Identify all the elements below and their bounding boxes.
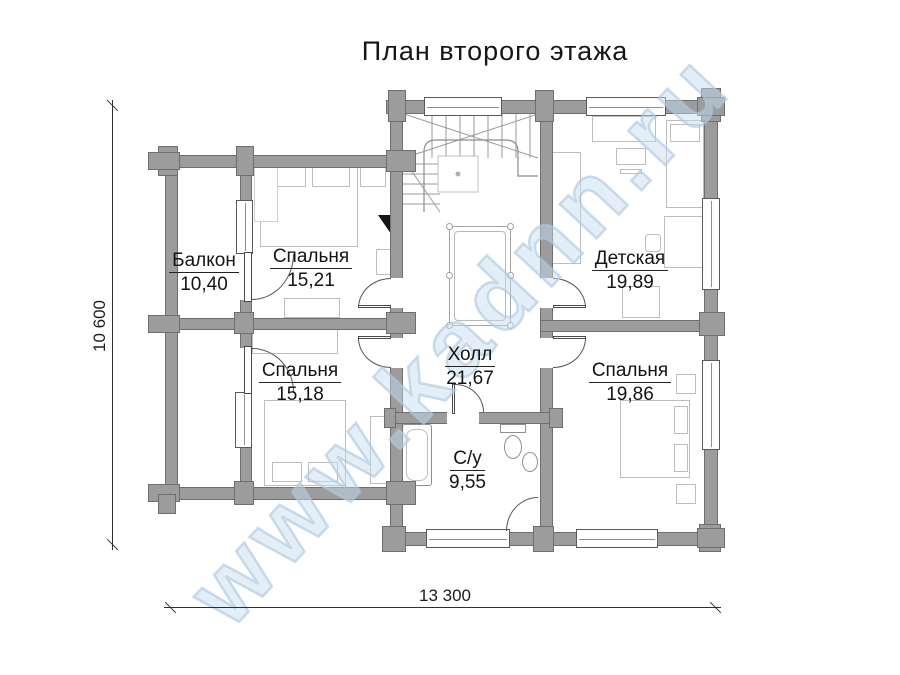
door-leaf [553, 305, 586, 308]
room-label-su: С/у 9,55 [410, 448, 525, 494]
room-label-balkon: Балкон 10,40 [158, 250, 250, 296]
log-end [549, 408, 563, 428]
floor-plan: План второго этажа [0, 0, 900, 675]
room-label-bedroom2: Спальня 15,18 [240, 360, 360, 406]
log-end [234, 481, 254, 505]
room-name: Балкон [169, 250, 239, 273]
window [576, 529, 658, 548]
wall-detskaya-divider [540, 320, 718, 332]
log-end [697, 97, 725, 116]
room-name: Спальня [259, 360, 341, 383]
pillow [272, 462, 302, 482]
log-end [386, 150, 416, 172]
wall-left-section-top [158, 155, 408, 168]
room-label-hall: Холл 21,67 [412, 344, 528, 390]
door-leaf [553, 336, 586, 339]
door-arc [358, 338, 391, 368]
log-end [697, 528, 725, 548]
door-leaf [358, 305, 391, 308]
room-area: 9,55 [410, 472, 525, 493]
room-name: Холл [445, 344, 496, 367]
log-end [382, 526, 406, 552]
log-end [699, 312, 725, 336]
billiard-pocket [507, 223, 514, 230]
billiard-pocket [446, 322, 453, 329]
log-end [388, 90, 406, 122]
desk [592, 116, 656, 142]
door-gap [540, 278, 553, 308]
dimension-line-vertical [112, 100, 113, 550]
log-end [148, 315, 180, 333]
door-arc [506, 497, 538, 531]
window [236, 200, 253, 254]
log-end [148, 152, 180, 170]
pillow [312, 167, 350, 187]
window [424, 97, 502, 116]
door-gap [390, 278, 403, 308]
log-end [236, 146, 254, 176]
pillow [674, 406, 688, 434]
monitor [616, 148, 646, 165]
room-name: С/у [450, 448, 485, 471]
room-area: 15,21 [252, 270, 370, 291]
nightstand [676, 484, 696, 504]
nightstand [360, 165, 386, 187]
room-area: 15,18 [240, 384, 360, 405]
billiard-pocket [446, 272, 453, 279]
wall-mid-left [158, 318, 414, 330]
log-end [386, 312, 416, 334]
dimension-width-label: 13 300 [400, 586, 490, 606]
wall-left-section-bottom [158, 487, 414, 500]
log-end [158, 494, 176, 514]
room-name: Спальня [589, 360, 671, 383]
window [702, 360, 720, 450]
room-label-bedroom1: Спальня 15,21 [252, 246, 370, 292]
keyboard [620, 169, 642, 174]
log-end [535, 90, 554, 122]
room-label-bedroom3: Спальня 19,86 [570, 360, 690, 406]
window [702, 198, 720, 290]
shelf [254, 162, 278, 222]
billiard-table [449, 226, 511, 326]
room-area: 21,67 [412, 368, 528, 389]
dimension-height-label: 10 600 [90, 284, 110, 368]
log-end [384, 408, 396, 428]
billiard-pocket [507, 272, 514, 279]
room-name: Детская [592, 248, 668, 271]
room-name: Спальня [270, 246, 352, 269]
billiard-pocket [446, 223, 453, 230]
log-end [234, 312, 254, 334]
window [586, 97, 666, 116]
pillow [674, 444, 688, 472]
dimension-line-horizontal [164, 607, 721, 608]
door-gap [390, 338, 403, 368]
room-area: 19,86 [570, 384, 690, 405]
window [426, 529, 510, 548]
toilet-tank [500, 424, 526, 433]
dresser [284, 298, 340, 318]
page-title: План второго этажа [330, 36, 660, 67]
billiard-pocket [507, 322, 514, 329]
room-area: 19,89 [568, 272, 692, 293]
door-leaf [358, 336, 391, 339]
pillow [308, 462, 338, 482]
stairs [402, 114, 540, 214]
pillow [670, 124, 700, 142]
room-area: 10,40 [158, 274, 250, 295]
room-label-detskaya: Детская 19,89 [568, 248, 692, 294]
door-gap [540, 338, 553, 368]
